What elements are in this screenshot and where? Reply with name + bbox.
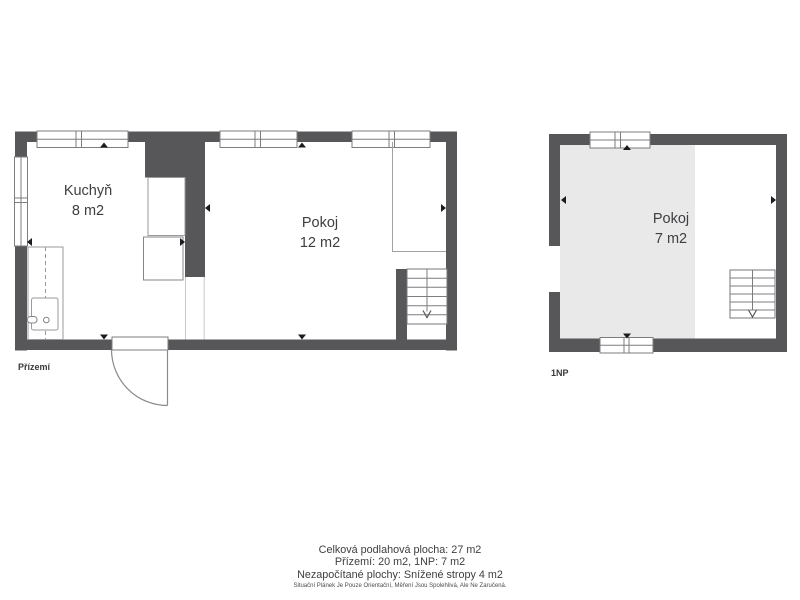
wall-top [549,134,787,145]
window [600,338,653,354]
per-floor-areas: Přízemí: 20 m2, 1NP: 7 m2 [0,556,800,568]
wall-arrow-icon [771,196,776,204]
door-opening [112,337,168,350]
window [37,131,128,148]
sink [32,298,59,330]
appliance [144,237,184,280]
window [15,157,28,246]
wall-arrow-icon [298,335,306,340]
wall-arrow-icon [298,143,306,148]
floor-label-ground: Přízemí [18,362,50,372]
closet [148,178,185,236]
wall-right [776,134,787,352]
wall-bottom [549,339,787,353]
staircase [407,269,447,324]
staircase [730,270,775,318]
room-name: Pokoj [611,210,731,230]
ground-floor-plan [15,131,458,406]
faucet-knob-icon [44,317,50,323]
room-label-pokoj-upper: Pokoj 7 m2 [611,210,731,249]
floorplan-canvas: Kuchyň 8 m2 Pokoj 12 m2 Pokoj 7 m2 Příze… [0,0,800,600]
total-floor-area: Celková podlahová plocha: 27 m2 [0,544,800,556]
window [220,131,297,148]
chimney-block [145,132,205,178]
wall-arrow-icon [441,204,446,212]
floor-label-upper: 1NP [551,368,569,378]
wall-left-upper [549,134,560,246]
faucet-icon [28,317,38,324]
door-swing-icon [112,350,168,406]
room-name: Pokoj [260,214,380,234]
wall-arrow-icon [100,335,108,340]
room-label-pokoj-ground: Pokoj 12 m2 [260,214,380,253]
room-area: 12 m2 [260,234,380,254]
entry-door [112,337,169,406]
wall-bottom [15,340,457,351]
room-name: Kuchyň [28,182,148,202]
window [352,131,430,148]
floorplan-drawing [0,0,800,600]
low-ceiling-boundary [393,142,447,252]
window [590,132,650,148]
room-label-kuchyn: Kuchyň 8 m2 [28,182,148,221]
disclaimer: Situační Plánek Je Pouze Orientační, Měř… [0,583,800,589]
room-area: 8 m2 [28,202,148,222]
stair-wall-stub [396,269,407,340]
partition-wall [185,177,205,277]
kitchen-counter [28,247,64,340]
room-area: 7 m2 [611,230,731,250]
area-summary: Celková podlahová plocha: 27 m2 Přízemí:… [0,544,800,589]
wall-arrow-icon [205,204,210,212]
wall-right [446,132,457,351]
excluded-areas: Nezapočítané plochy: Snížené stropy 4 m2 [0,569,800,581]
wall-left-lower [549,292,560,352]
